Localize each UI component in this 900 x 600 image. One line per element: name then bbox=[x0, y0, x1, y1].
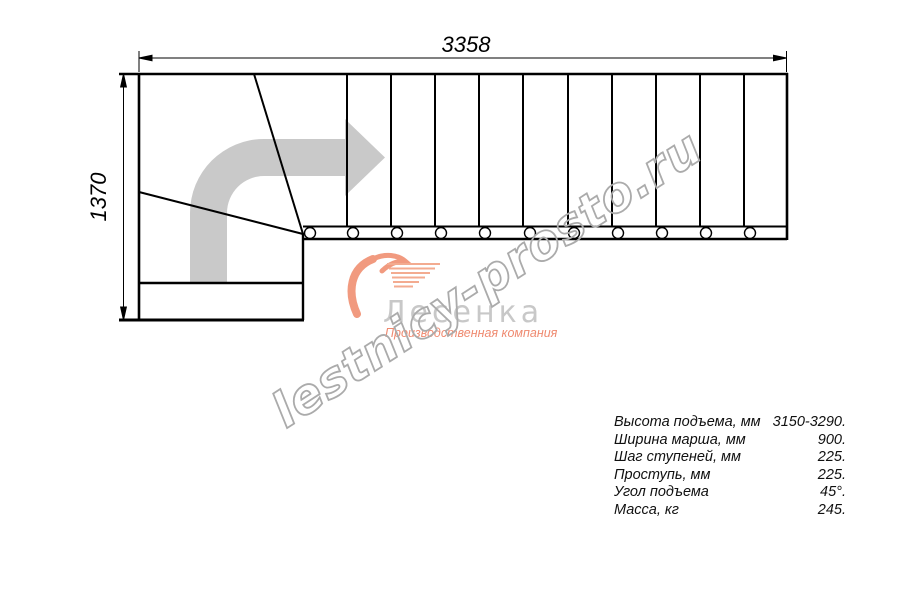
spec-value: 45°. bbox=[820, 484, 846, 502]
baluster-circles bbox=[305, 228, 756, 239]
spec-label: Ширина марша, мм bbox=[614, 432, 746, 450]
dimension-width-label: 3358 bbox=[442, 32, 492, 57]
spec-value: 900. bbox=[818, 432, 846, 450]
spec-row-angle: Угол подъема 45°. bbox=[614, 484, 846, 502]
spec-value: 225. bbox=[818, 467, 846, 485]
spec-value: 225. bbox=[818, 449, 846, 467]
spec-label: Шаг ступеней, мм bbox=[614, 449, 741, 467]
spec-label: Проступь, мм bbox=[614, 467, 710, 485]
dimension-arrow-left-icon bbox=[139, 55, 152, 61]
spec-label: Высота подъема, мм bbox=[614, 414, 761, 432]
handrail-strip bbox=[303, 227, 787, 240]
dimension-arrow-right-icon bbox=[774, 55, 787, 61]
dimension-height-label: 1370 bbox=[86, 172, 111, 222]
spec-row-tread: Проступь, мм 225. bbox=[614, 467, 846, 485]
spec-label: Масса, кг bbox=[614, 502, 679, 520]
spec-table: Высота подъема, мм 3150-3290. Ширина мар… bbox=[614, 414, 846, 520]
company-logo: Лесенка Производственная компания bbox=[335, 248, 575, 348]
logo-tagline: Производственная компания bbox=[385, 326, 558, 340]
spec-value: 3150-3290. bbox=[773, 414, 846, 432]
logo-company-name: Лесенка bbox=[383, 295, 543, 330]
spec-row-mass: Масса, кг 245. bbox=[614, 502, 846, 520]
dimension-arrow-up-icon bbox=[121, 74, 127, 87]
spec-row-step-pitch: Шаг ступеней, мм 225. bbox=[614, 449, 846, 467]
spec-label: Угол подъема bbox=[614, 484, 709, 502]
spec-row-flight-width: Ширина марша, мм 900. bbox=[614, 432, 846, 450]
flight-step-lines bbox=[347, 74, 744, 226]
staircase-drawing-page: 3358 1370 bbox=[0, 0, 900, 600]
dimension-arrow-down-icon bbox=[121, 307, 127, 320]
spec-row-height: Высота подъема, мм 3150-3290. bbox=[614, 414, 846, 432]
spec-value: 245. bbox=[818, 502, 846, 520]
dimension-height bbox=[121, 74, 127, 320]
